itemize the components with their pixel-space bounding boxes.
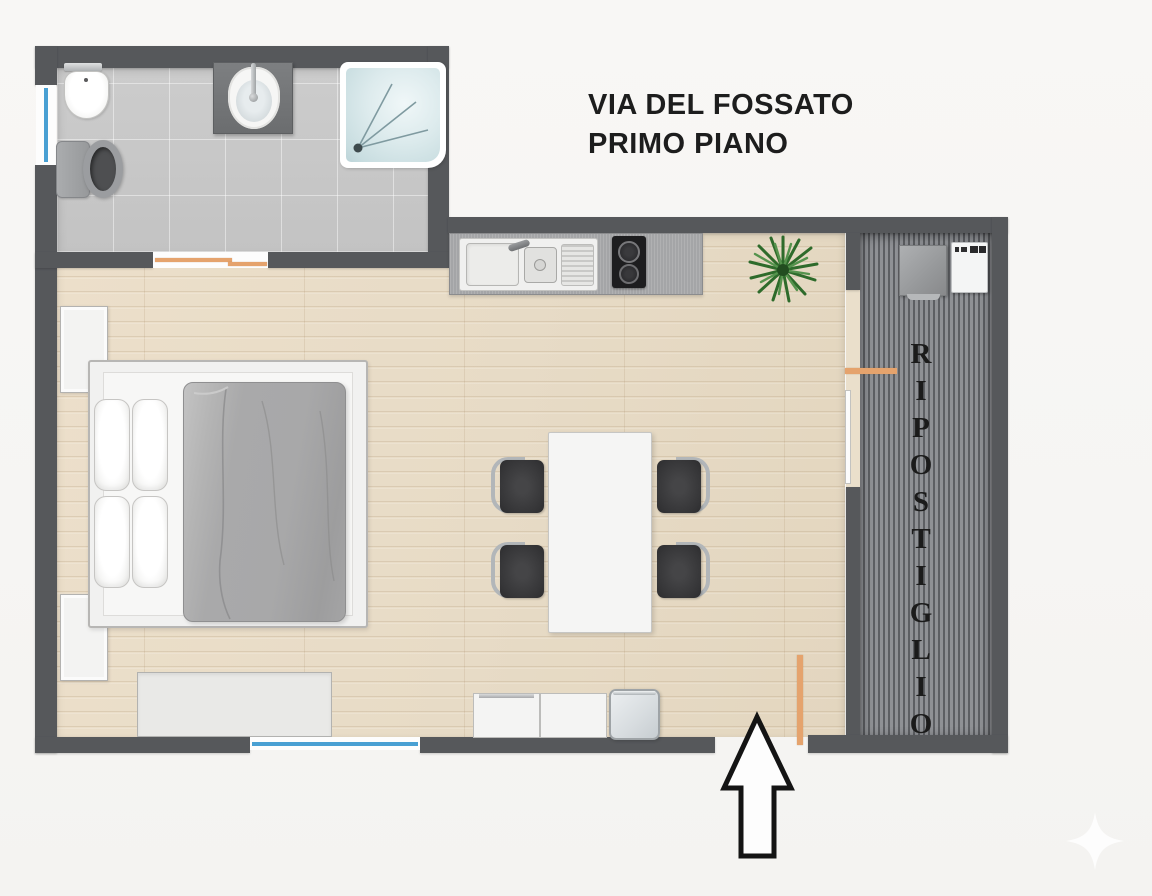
- chair-bottom-left: [494, 544, 545, 599]
- wall-storage-right: [992, 217, 1008, 753]
- appliance-control-button-2: [961, 247, 967, 252]
- wall-storage-left-lower: [846, 487, 860, 737]
- pillow-3: [94, 496, 130, 588]
- cooktop-burner-front: [618, 241, 640, 263]
- wall-bathroom-bottom-right: [268, 252, 449, 268]
- toilet-bowl: [83, 140, 123, 198]
- storage-door-swing: [845, 368, 897, 374]
- pillow-1: [94, 399, 130, 491]
- storage-room-label: RIPOSTIGLIO: [897, 338, 945, 722]
- cabinet-1: [473, 693, 540, 738]
- appliance-control-display-2: [979, 246, 986, 253]
- wall-top-right: [448, 217, 1008, 233]
- wall-bottom-left: [35, 737, 250, 753]
- cabinet-1-handle: [479, 694, 534, 698]
- shower-door-pivot: [354, 144, 363, 153]
- chair-seat: [657, 545, 701, 598]
- plan-title-line-1: VIA DEL FOSSATO: [588, 86, 854, 125]
- dresser: [137, 672, 332, 737]
- plan-title-line-2: PRIMO PIANO: [588, 125, 854, 164]
- chair-seat: [500, 545, 544, 598]
- pillow-4: [132, 496, 168, 588]
- vanity-faucet-knob: [249, 93, 258, 102]
- duvet-fold-lines: [184, 383, 347, 623]
- cooktop-burner-rear: [619, 264, 639, 284]
- wall-bathroom-bottom-left: [35, 252, 153, 268]
- window-left-glass: [44, 88, 48, 162]
- chair-top-right: [656, 459, 707, 514]
- kitchen-sink-drainer: [561, 244, 594, 286]
- storage-appliance-gray: [899, 245, 947, 296]
- entrance-arrow-icon: [715, 710, 805, 862]
- chair-top-left: [494, 459, 545, 514]
- wall-bottom-mid: [420, 737, 715, 753]
- cabinet-2: [540, 693, 607, 738]
- chair-bottom-right: [656, 544, 707, 599]
- watermark-star-icon: [1066, 812, 1124, 870]
- chair-seat: [657, 460, 701, 513]
- dining-table: [548, 432, 652, 633]
- plant-icon: [745, 232, 821, 304]
- bathroom-door-line-2: [228, 262, 267, 266]
- storage-appliance-gray-lip: [907, 294, 940, 300]
- appliance-control-button-1: [955, 247, 959, 252]
- vanity-faucet: [251, 63, 256, 97]
- cabinet-metal: [609, 689, 660, 740]
- chair-seat: [500, 460, 544, 513]
- duvet: [183, 382, 346, 622]
- appliance-control-display: [970, 246, 978, 253]
- bidet-wall-bar: [64, 63, 102, 71]
- storage-door-leaf: [845, 390, 851, 484]
- wall-left-upper: [35, 46, 57, 85]
- plan-title: VIA DEL FOSSATO PRIMO PIANO: [588, 86, 854, 164]
- bathroom-door-line-1: [155, 258, 232, 262]
- floor-plan-page: { "title": { "line1": "VIA DEL FOSSATO",…: [0, 0, 1152, 896]
- kitchen-sink-drain: [534, 259, 546, 271]
- shower-door-lines: [346, 68, 440, 162]
- cabinet-metal-handle: [613, 691, 656, 695]
- pillow-2: [132, 399, 168, 491]
- wall-storage-left-upper: [846, 233, 860, 290]
- bidet-drain-dot: [84, 78, 88, 82]
- window-bottom-glass: [252, 742, 418, 746]
